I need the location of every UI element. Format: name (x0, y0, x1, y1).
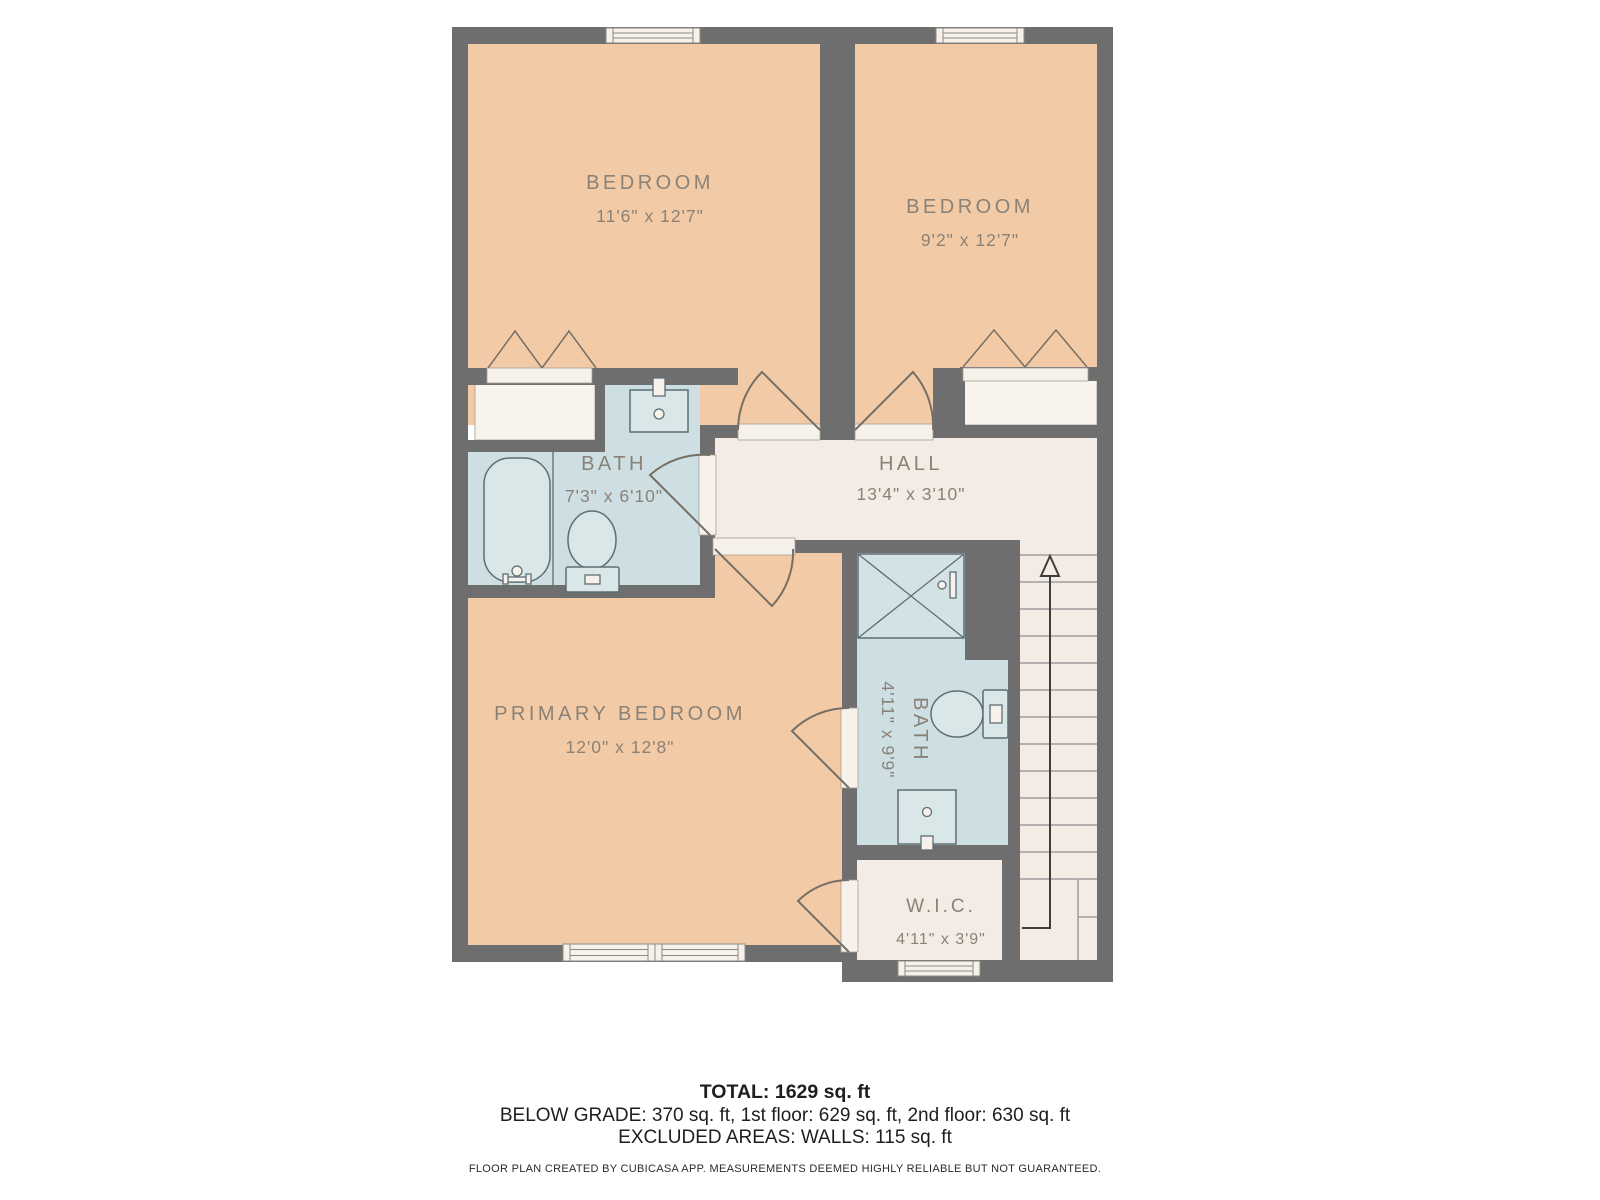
wall-nook-left (595, 368, 605, 452)
wall-hall-bottom (793, 540, 965, 553)
floor-plan-canvas: BEDROOM 11'6" x 12'7" BEDROOM 9'2" x 12'… (0, 0, 1600, 1200)
primary-bedroom-dims: 12'0" x 12'8" (566, 737, 675, 757)
shower-icon (858, 554, 964, 638)
bath-2-dims: 4'11" x 9'9" (878, 682, 898, 779)
bedroom-1-label: BEDROOM (586, 172, 714, 194)
primary-bedroom-floor-notch (715, 553, 842, 598)
wic-door-opening (841, 880, 858, 952)
wall-closet1-bottom (468, 440, 600, 452)
wic-dims: 4'11" x 3'9" (896, 931, 986, 948)
hall-dims: 13'4" x 3'10" (857, 484, 966, 504)
excluded-areas-text: EXCLUDED AREAS: WALLS: 115 sq. ft (618, 1127, 952, 1148)
window-icon (606, 28, 700, 43)
wall-wic-right (1002, 860, 1020, 960)
window-icon (655, 944, 745, 961)
bedroom-1-dims: 11'6" x 12'7" (596, 206, 704, 226)
bedroom-1-door-opening (738, 424, 820, 440)
closet-2-floor (963, 380, 1097, 425)
bath-1-dims: 7'3" x 6'10" (565, 486, 663, 506)
primary-bedroom-floor (468, 598, 842, 945)
toilet-icon (566, 511, 619, 592)
area-summary: TOTAL: 1629 sq. ft BELOW GRADE: 370 sq. … (469, 1081, 1101, 1175)
window-icon (898, 961, 980, 976)
bath-1-door-opening (699, 455, 716, 535)
bath-2-door-opening (841, 708, 858, 788)
floor-areas (468, 44, 1097, 962)
total-area-text: TOTAL: 1629 sq. ft (700, 1081, 871, 1103)
wall-right (1097, 27, 1113, 982)
wall-bedroom-divider (820, 44, 855, 440)
bedroom-2-label: BEDROOM (906, 196, 1034, 218)
primary-bedroom-label: PRIMARY BEDROOM (494, 703, 746, 725)
wall-left (452, 27, 468, 962)
bedroom-2-door-opening (855, 424, 933, 440)
wic-label: W.I.C. (906, 896, 976, 917)
wall-shower-corner (965, 540, 1020, 660)
bath-1-label: BATH (581, 453, 647, 475)
closet-2-track (963, 368, 1088, 381)
floor-areas-text: BELOW GRADE: 370 sq. ft, 1st floor: 629 … (500, 1105, 1071, 1126)
disclaimer-text: FLOOR PLAN CREATED BY CUBICASA APP. MEAS… (469, 1163, 1101, 1175)
sink-icon (898, 790, 956, 850)
window-icon (936, 28, 1024, 43)
window-icon (563, 944, 655, 961)
closet-1-track (487, 368, 592, 383)
floor-plan-page: BEDROOM 11'6" x 12'7" BEDROOM 9'2" x 12'… (0, 0, 1600, 1200)
bathtub-icon (484, 458, 550, 584)
bath-2-label: BATH (909, 697, 931, 763)
stairs-floor (1020, 438, 1097, 962)
primary-bedroom-door-opening (713, 538, 795, 555)
bedroom-2-dims: 9'2" x 12'7" (921, 230, 1019, 250)
toilet-icon (931, 690, 1008, 738)
hall-label: HALL (879, 453, 943, 475)
closet-1-floor (475, 383, 595, 440)
